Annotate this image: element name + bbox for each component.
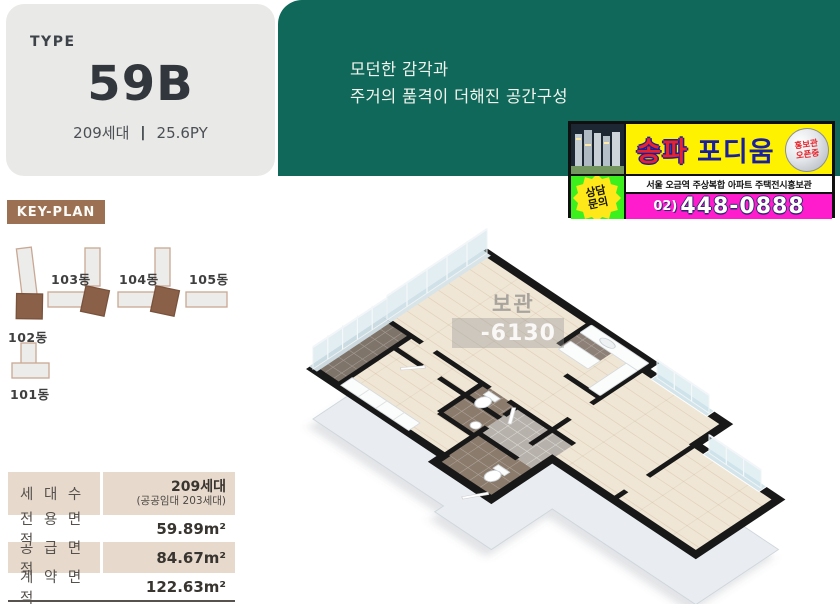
table-row: 계 약 면 적 122.63m² xyxy=(8,574,235,599)
exclusive-area-value: 59.89m² xyxy=(156,520,226,538)
building-105-icon xyxy=(186,292,227,307)
households-value: 209세대 xyxy=(171,479,226,495)
row-label: 계 약 면 적 xyxy=(8,574,100,599)
ad-building-photo xyxy=(571,124,624,174)
tagline-line1: 모던한 감각과 xyxy=(350,56,568,83)
watermark-phone: -6130 xyxy=(452,318,564,348)
ad-open-badge: 홍보관 오픈중 xyxy=(782,125,832,175)
contract-area-value: 122.63m² xyxy=(146,578,226,596)
ad-banner-bottom-row: 상담문의 서울 오금역 주상복합 아파트 주택전시홍보관 02) 448-088… xyxy=(571,174,832,219)
key-plan-title: KEY-PLAN xyxy=(7,200,105,224)
ad-subtitle: 서울 오금역 주상복합 아파트 주택전시홍보관 xyxy=(626,176,832,192)
phone-number: 448-0888 xyxy=(680,194,804,219)
ad-title: 송파 포디움 xyxy=(624,124,785,174)
building-104-label: 104동 xyxy=(119,269,159,288)
unit-count: 209세대 xyxy=(73,122,129,143)
ad-banner[interactable]: 송파 포디움 홍보관 오픈중 상담문의 서울 오금역 주상복합 아파트 주택전시… xyxy=(568,121,835,218)
supply-area-value: 84.67m² xyxy=(156,549,226,567)
badge-line2: 오픈중 xyxy=(795,148,820,161)
building-103-label: 103동 xyxy=(51,269,91,288)
divider: | xyxy=(140,125,145,141)
building-101-label: 101동 xyxy=(10,384,50,403)
tagline-line2: 주거의 품격이 더해진 공간구성 xyxy=(350,83,568,110)
starburst-icon: 상담문의 xyxy=(580,181,614,215)
type-label: TYPE xyxy=(30,34,76,50)
building-102-label: 102동 xyxy=(8,327,48,346)
pyeong-size: 25.6PY xyxy=(157,124,208,142)
info-table: 세 대 수 209세대 (공공임대 203세대) 전 용 면 적 59.89m²… xyxy=(8,472,235,602)
floor-plan xyxy=(300,220,840,604)
phone-prefix: 02) xyxy=(653,199,677,214)
page: 모던한 감각과 주거의 품격이 더해진 공간구성 TYPE 59B 209세대 … xyxy=(0,0,840,604)
ad-consult-box: 상담문의 xyxy=(571,176,624,219)
type-code: 59B xyxy=(6,56,275,112)
type-card: TYPE 59B 209세대 | 25.6PY xyxy=(6,4,275,176)
ad-title-part2: 포디움 xyxy=(697,130,775,169)
watermark-text: 보관 xyxy=(492,288,535,318)
building-102-icon xyxy=(8,246,46,322)
ad-right-column: 서울 오금역 주상복합 아파트 주택전시홍보관 02) 448-0888 xyxy=(624,176,832,219)
header-tagline: 모던한 감각과 주거의 품격이 더해진 공간구성 xyxy=(350,56,568,110)
households-subvalue: (공공임대 203세대) xyxy=(136,495,226,508)
type-subtitle: 209세대 | 25.6PY xyxy=(6,122,275,143)
ad-title-part1: 송파 xyxy=(636,130,688,169)
building-105-label: 105동 xyxy=(189,269,229,288)
building-101-icon xyxy=(12,343,49,378)
ad-banner-top-row: 송파 포디움 홍보관 오픈중 xyxy=(571,124,832,174)
ad-phone[interactable]: 02) 448-0888 xyxy=(626,192,832,219)
